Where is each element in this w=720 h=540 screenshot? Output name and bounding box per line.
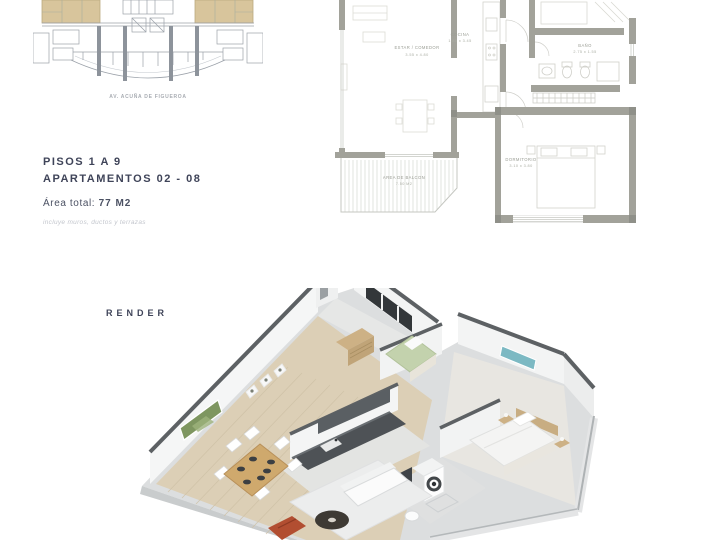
- street-caption: AV. ACUÑA DE FIGUEROA: [33, 94, 263, 100]
- floors-line: PISOS 1 A 9: [43, 156, 201, 168]
- apartments-line: APARTAMENTOS 02 - 08: [43, 173, 201, 185]
- brochure-page: AV. ACUÑA DE FIGUEROA PISOS 1 A 9 APARTA…: [0, 0, 720, 540]
- render-drawing: [140, 288, 620, 540]
- render-3d: [140, 288, 620, 540]
- svg-text:3.55 x 4.80: 3.55 x 4.80: [405, 53, 428, 57]
- building-key-plan: AV. ACUÑA DE FIGUEROA: [33, 0, 263, 108]
- room-label-estar-comedor: ESTAR / COMEDOR 3.55 x 4.80: [394, 45, 439, 57]
- area-line: Área total: 77 M2: [43, 198, 201, 209]
- room-label-dormitorio: DORMITORIO 3.10 x 3.80: [505, 157, 536, 168]
- floor-plan-2d: ESTAR / COMEDOR 3.55 x 4.80 COCINA 1.80 …: [333, 0, 663, 228]
- svg-text:7.50 M2: 7.50 M2: [396, 182, 413, 186]
- svg-text:2.75 x 1.55: 2.75 x 1.55: [573, 50, 596, 54]
- svg-text:AREA DE BALCON: AREA DE BALCON: [383, 175, 425, 180]
- svg-text:3.10 x 3.80: 3.10 x 3.80: [509, 164, 532, 168]
- area-value: 77 M2: [99, 198, 132, 209]
- room-label-bano: BAÑO 2.75 x 1.55: [573, 43, 596, 54]
- svg-text:BAÑO: BAÑO: [578, 43, 592, 48]
- svg-text:DORMITORIO: DORMITORIO: [505, 157, 536, 162]
- svg-text:COCINA: COCINA: [451, 32, 470, 37]
- building-key-plan-drawing: [33, 0, 263, 90]
- svg-text:ESTAR / COMEDOR: ESTAR / COMEDOR: [394, 45, 439, 50]
- floor-plan-drawing: ESTAR / COMEDOR 3.55 x 4.80 COCINA 1.80 …: [333, 0, 663, 228]
- svg-text:1.80 x 3.45: 1.80 x 3.45: [448, 39, 471, 43]
- area-label: Área total:: [43, 198, 95, 209]
- area-note: incluye muros, ductos y terrazas: [43, 219, 201, 226]
- unit-info: PISOS 1 A 9 APARTAMENTOS 02 - 08 Área to…: [43, 156, 201, 233]
